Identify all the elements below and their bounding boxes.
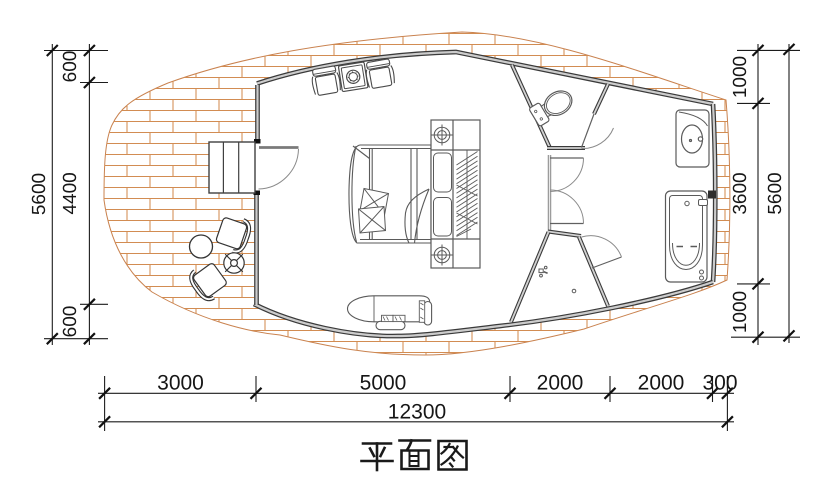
svg-text:2000: 2000 bbox=[537, 372, 584, 395]
svg-text:600: 600 bbox=[60, 51, 81, 83]
svg-text:5600: 5600 bbox=[765, 172, 786, 214]
svg-text:3600: 3600 bbox=[730, 172, 751, 214]
svg-text:4400: 4400 bbox=[60, 172, 81, 214]
svg-text:5600: 5600 bbox=[29, 173, 50, 215]
svg-text:1000: 1000 bbox=[730, 291, 751, 333]
svg-text:3000: 3000 bbox=[157, 372, 204, 395]
svg-text:1000: 1000 bbox=[730, 56, 751, 98]
svg-text:5000: 5000 bbox=[360, 372, 407, 395]
svg-text:12300: 12300 bbox=[388, 401, 446, 424]
svg-text:600: 600 bbox=[60, 306, 81, 338]
svg-text:2000: 2000 bbox=[638, 372, 685, 395]
svg-text:300: 300 bbox=[702, 372, 737, 395]
